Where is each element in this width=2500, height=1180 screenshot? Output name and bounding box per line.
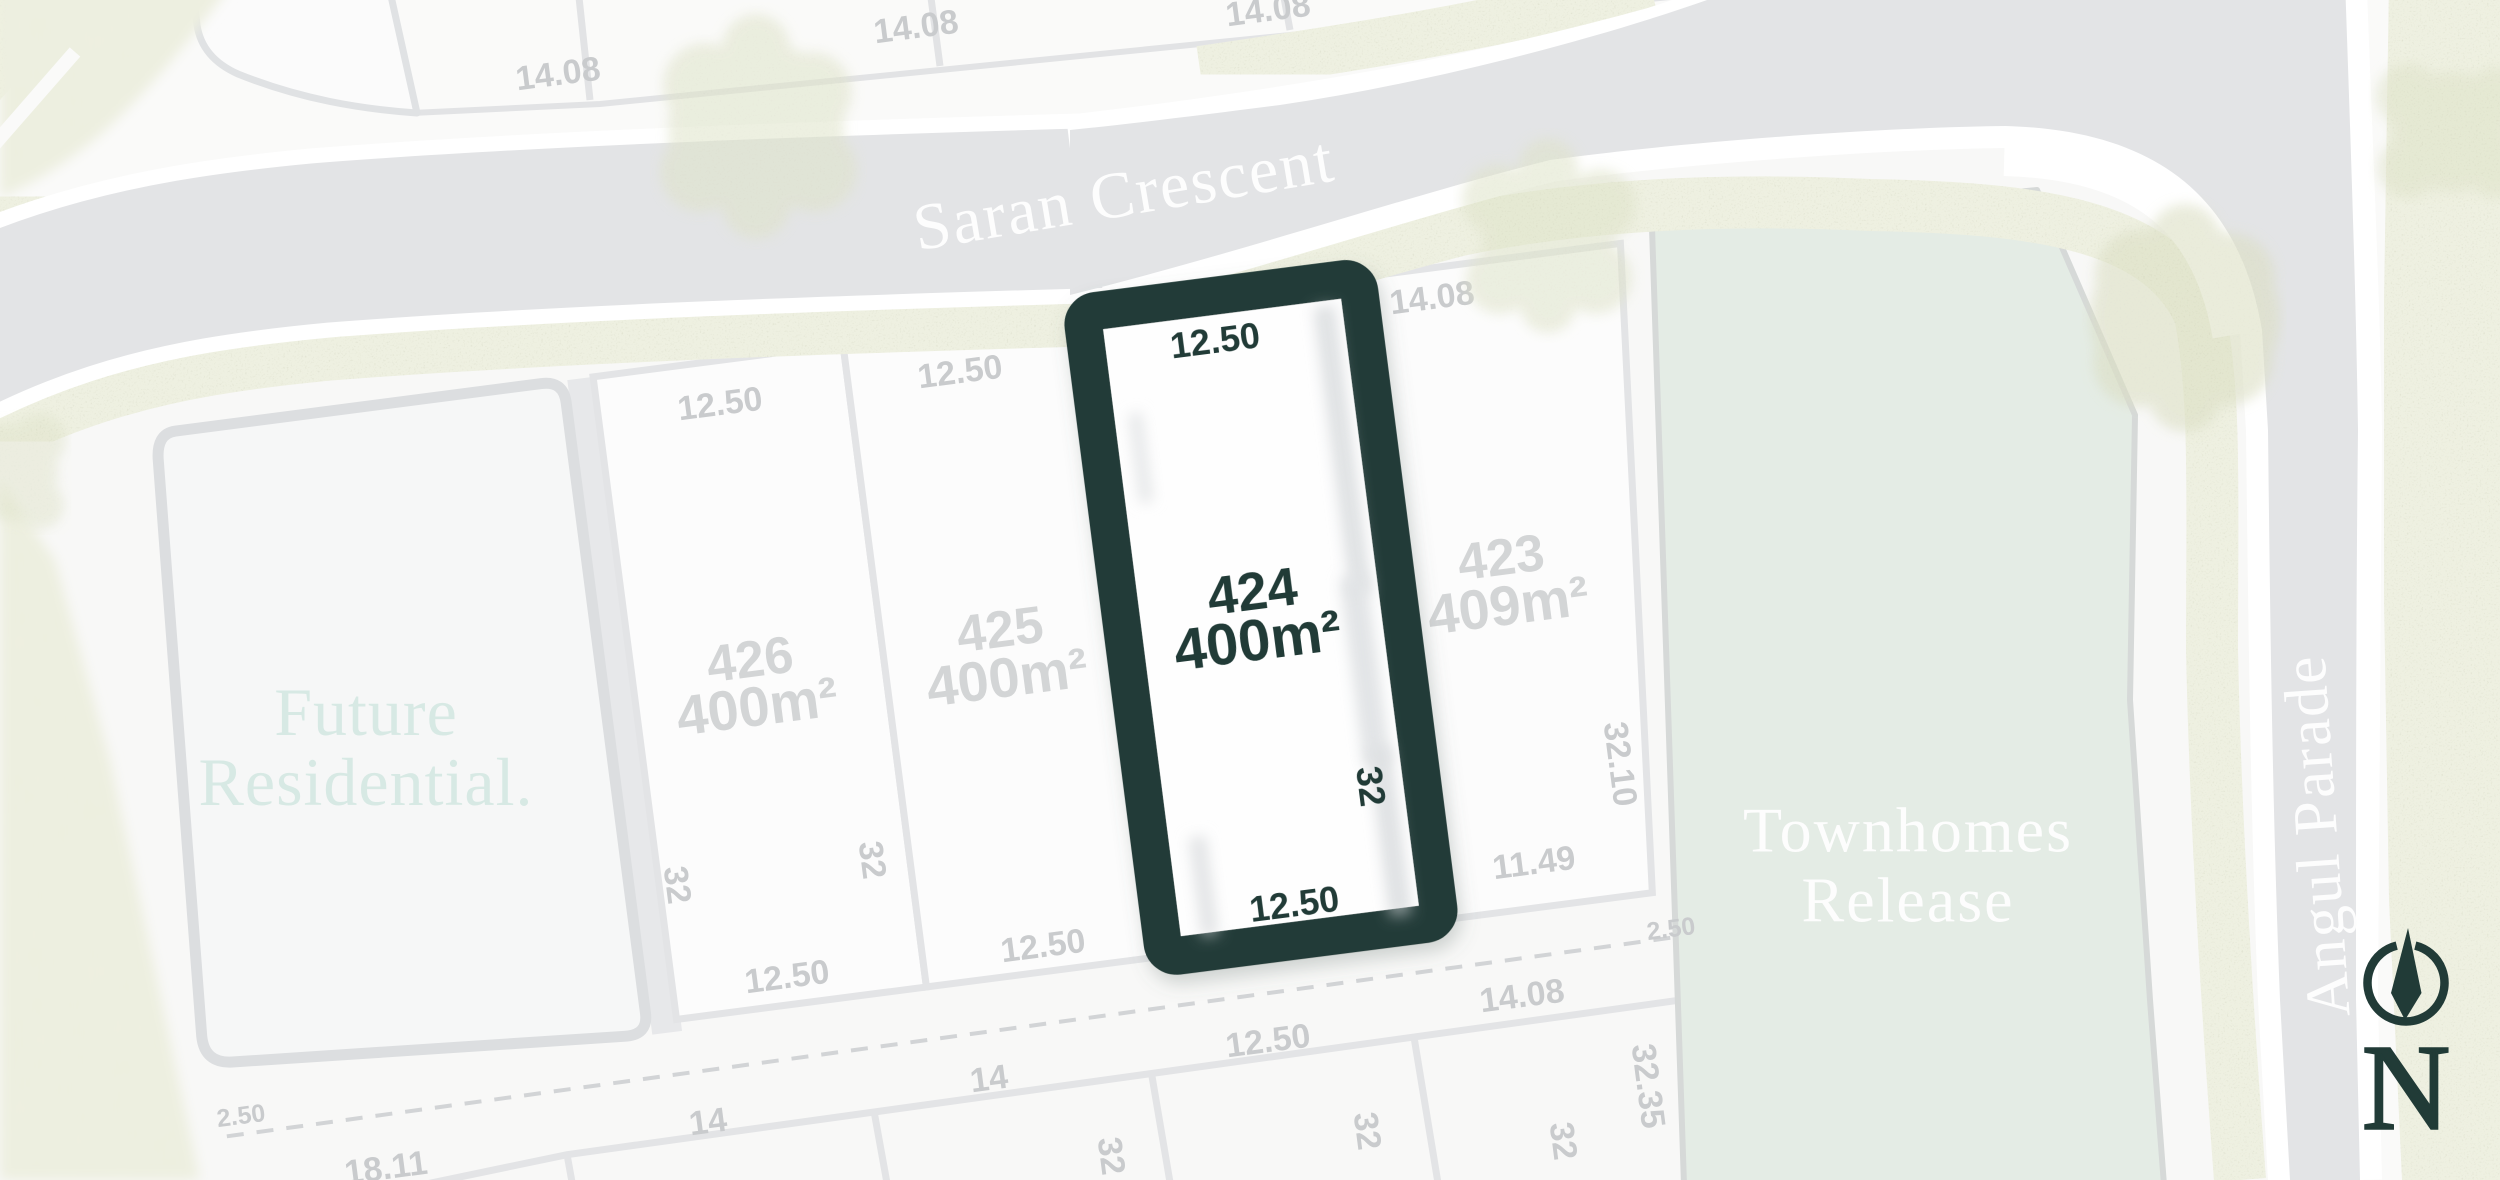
svg-text:Townhomes: Townhomes — [1743, 795, 2073, 866]
svg-text:Residential.: Residential. — [199, 744, 534, 820]
svg-text:Release: Release — [1802, 865, 2015, 936]
svg-text:14: 14 — [968, 1058, 1010, 1101]
svg-text:32: 32 — [1346, 1110, 1389, 1152]
svg-text:32: 32 — [656, 864, 699, 906]
svg-text:14: 14 — [687, 1101, 729, 1144]
svg-text:32: 32 — [1090, 1135, 1133, 1177]
svg-text:Future: Future — [274, 674, 458, 750]
svg-text:32: 32 — [1542, 1120, 1585, 1162]
svg-text:32: 32 — [1348, 764, 1394, 809]
svg-text:32: 32 — [851, 839, 894, 881]
svg-text:N: N — [2362, 1021, 2450, 1156]
